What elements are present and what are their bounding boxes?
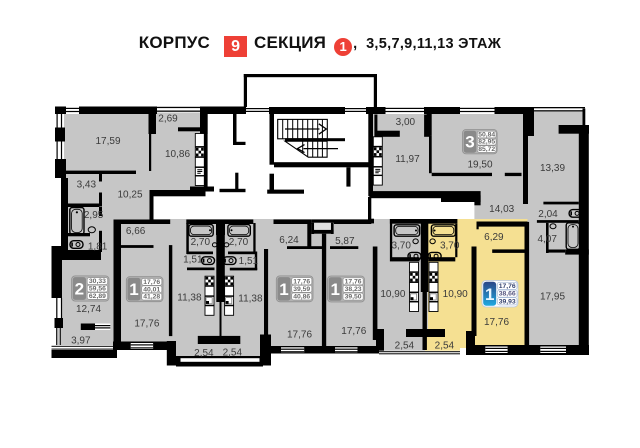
svg-text:39,50: 39,50	[345, 294, 362, 301]
svg-text:11,38: 11,38	[177, 293, 202, 304]
svg-text:17,76: 17,76	[134, 318, 159, 329]
svg-text:11,38: 11,38	[238, 294, 263, 305]
svg-text:19,50: 19,50	[467, 160, 492, 171]
svg-text:17,76: 17,76	[341, 326, 366, 337]
svg-text:50,84: 50,84	[478, 132, 495, 139]
svg-text:1: 1	[485, 285, 494, 304]
svg-text:10,90: 10,90	[380, 289, 405, 300]
svg-text:3,00: 3,00	[396, 117, 416, 128]
svg-text:17,76: 17,76	[345, 278, 362, 285]
svg-text:17,76: 17,76	[293, 278, 310, 285]
svg-text:3,97: 3,97	[71, 335, 91, 346]
svg-text:10,86: 10,86	[165, 149, 190, 160]
svg-text:1: 1	[330, 280, 339, 299]
svg-text:17,76: 17,76	[499, 283, 516, 290]
svg-text:12,74: 12,74	[76, 304, 101, 315]
svg-text:3,43: 3,43	[77, 180, 97, 191]
svg-text:2,69: 2,69	[158, 114, 178, 125]
svg-text:1,51: 1,51	[183, 255, 203, 266]
svg-text:2,54: 2,54	[435, 341, 455, 352]
svg-text:41,28: 41,28	[143, 294, 160, 301]
svg-text:6,66: 6,66	[126, 226, 146, 237]
svg-text:1,51: 1,51	[239, 256, 259, 267]
svg-text:4,07: 4,07	[537, 234, 557, 245]
svg-text:3: 3	[465, 133, 474, 152]
svg-text:39,59: 39,59	[293, 286, 310, 293]
svg-text:2,54: 2,54	[194, 348, 214, 359]
svg-text:1: 1	[279, 280, 288, 299]
svg-text:10,25: 10,25	[117, 190, 142, 201]
svg-text:1,81: 1,81	[88, 241, 108, 252]
svg-text:6,29: 6,29	[484, 232, 504, 243]
svg-text:5,87: 5,87	[335, 236, 355, 247]
svg-text:17,76: 17,76	[484, 317, 509, 328]
svg-text:14,03: 14,03	[489, 204, 514, 215]
svg-text:40,01: 40,01	[143, 286, 160, 293]
svg-text:85,72: 85,72	[478, 146, 495, 153]
svg-text:17,76: 17,76	[143, 279, 160, 286]
svg-text:38,66: 38,66	[499, 291, 516, 298]
svg-text:3,70: 3,70	[440, 241, 460, 252]
svg-text:3,70: 3,70	[391, 241, 411, 252]
svg-text:11,97: 11,97	[395, 154, 420, 165]
svg-text:40,86: 40,86	[293, 294, 310, 301]
svg-text:13,39: 13,39	[540, 163, 565, 174]
svg-text:2,54: 2,54	[223, 347, 243, 358]
svg-text:30,33: 30,33	[89, 278, 106, 285]
svg-text:17,95: 17,95	[540, 292, 565, 303]
svg-text:17,76: 17,76	[287, 330, 312, 341]
svg-text:17,59: 17,59	[95, 136, 120, 147]
svg-text:2,70: 2,70	[191, 237, 211, 248]
svg-text:2,95: 2,95	[84, 210, 104, 221]
svg-text:6,24: 6,24	[279, 235, 299, 246]
svg-text:2,54: 2,54	[395, 341, 415, 352]
svg-text:59,56: 59,56	[89, 286, 106, 293]
svg-text:38,23: 38,23	[345, 286, 362, 293]
svg-text:39,93: 39,93	[499, 298, 516, 305]
svg-text:82,95: 82,95	[478, 139, 495, 146]
svg-text:2,04: 2,04	[538, 209, 558, 220]
svg-text:10,90: 10,90	[443, 289, 468, 300]
svg-text:1: 1	[129, 280, 138, 299]
svg-text:62,89: 62,89	[89, 293, 106, 300]
svg-text:2: 2	[75, 280, 84, 299]
svg-text:2,70: 2,70	[229, 237, 249, 248]
